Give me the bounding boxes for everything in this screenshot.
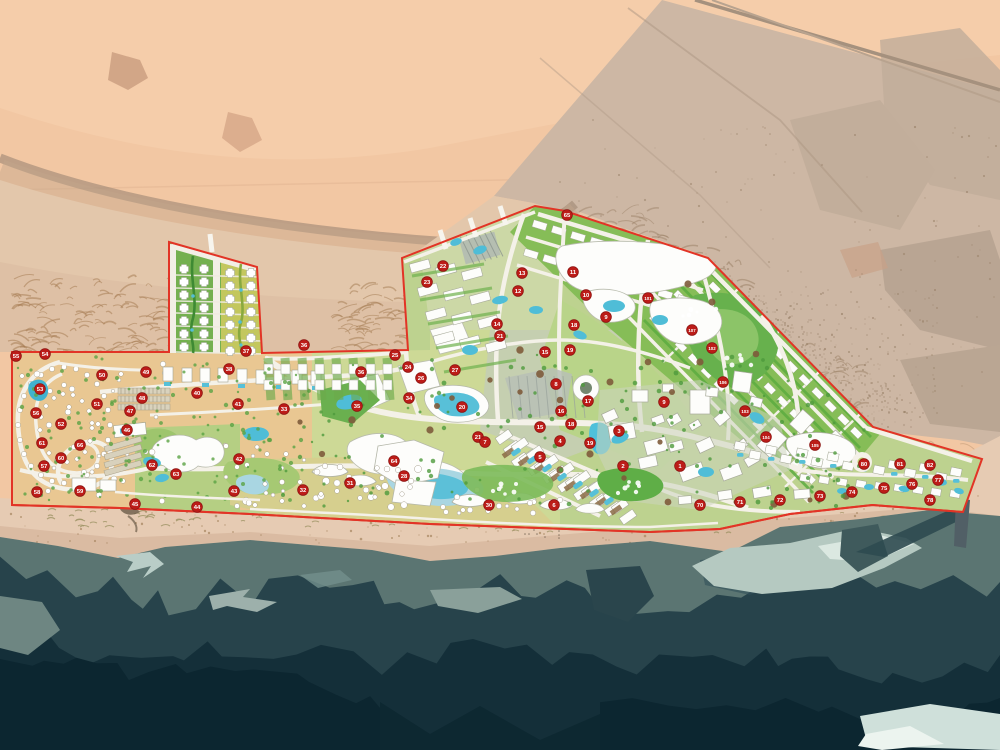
svg-text:51: 51: [94, 402, 101, 408]
svg-text:30: 30: [486, 503, 493, 509]
svg-text:19: 19: [567, 348, 574, 354]
svg-text:27: 27: [452, 368, 459, 374]
svg-text:18: 18: [571, 323, 578, 329]
svg-text:12: 12: [515, 289, 522, 295]
svg-text:62: 62: [149, 463, 156, 469]
svg-text:52: 52: [58, 422, 65, 428]
svg-text:11: 11: [570, 270, 577, 276]
svg-text:17: 17: [585, 399, 592, 405]
svg-text:71: 71: [737, 500, 744, 506]
svg-text:74: 74: [849, 490, 856, 496]
svg-text:18: 18: [568, 422, 575, 428]
svg-text:77: 77: [935, 478, 942, 484]
svg-text:60: 60: [58, 456, 65, 462]
svg-text:70: 70: [697, 503, 704, 509]
svg-text:82: 82: [927, 463, 934, 469]
svg-text:15: 15: [542, 350, 549, 356]
svg-text:32: 32: [300, 488, 307, 494]
svg-text:106: 106: [719, 380, 727, 385]
svg-text:21: 21: [497, 334, 504, 340]
svg-text:80: 80: [861, 462, 868, 468]
svg-text:102: 102: [708, 346, 716, 351]
svg-text:31: 31: [347, 481, 354, 487]
svg-text:15: 15: [537, 425, 544, 431]
svg-text:34: 34: [406, 396, 413, 402]
svg-text:16: 16: [558, 409, 565, 415]
svg-text:28: 28: [401, 474, 408, 480]
svg-text:105: 105: [811, 443, 819, 448]
svg-text:19: 19: [587, 441, 594, 447]
svg-text:46: 46: [124, 428, 131, 434]
svg-text:35: 35: [354, 404, 361, 410]
svg-text:101: 101: [644, 296, 652, 301]
svg-text:20: 20: [459, 405, 466, 411]
svg-text:61: 61: [39, 441, 46, 447]
svg-text:47: 47: [127, 409, 134, 415]
svg-text:37: 37: [243, 349, 250, 355]
svg-text:64: 64: [391, 459, 398, 465]
svg-text:36: 36: [301, 343, 308, 349]
svg-text:72: 72: [777, 498, 784, 504]
svg-text:107: 107: [688, 328, 696, 333]
svg-text:59: 59: [77, 489, 84, 495]
svg-text:36: 36: [358, 370, 365, 376]
svg-text:14: 14: [494, 322, 501, 328]
svg-text:50: 50: [99, 373, 106, 379]
svg-text:10: 10: [583, 293, 590, 299]
svg-text:104: 104: [762, 435, 770, 440]
svg-text:42: 42: [236, 457, 243, 463]
svg-text:48: 48: [139, 396, 146, 402]
svg-text:81: 81: [897, 462, 904, 468]
svg-text:78: 78: [927, 498, 934, 504]
svg-text:44: 44: [194, 505, 201, 511]
svg-text:103: 103: [741, 409, 749, 414]
svg-text:55: 55: [13, 354, 20, 360]
svg-text:73: 73: [817, 494, 824, 500]
svg-text:58: 58: [34, 490, 41, 496]
svg-text:33: 33: [281, 407, 288, 413]
svg-text:23: 23: [424, 280, 431, 286]
svg-text:56: 56: [33, 411, 40, 417]
svg-text:38: 38: [226, 367, 233, 373]
svg-text:65: 65: [564, 213, 571, 219]
svg-text:45: 45: [132, 502, 139, 508]
svg-text:57: 57: [41, 464, 48, 470]
svg-text:43: 43: [231, 489, 238, 495]
svg-text:24: 24: [405, 365, 412, 371]
svg-text:13: 13: [519, 271, 526, 277]
svg-text:26: 26: [418, 376, 425, 382]
svg-text:75: 75: [881, 486, 888, 492]
svg-text:22: 22: [440, 264, 447, 270]
svg-text:25: 25: [392, 353, 399, 359]
svg-text:40: 40: [194, 391, 201, 397]
svg-text:76: 76: [909, 482, 916, 488]
svg-text:63: 63: [173, 472, 180, 478]
svg-text:54: 54: [42, 352, 49, 358]
svg-text:41: 41: [235, 402, 242, 408]
svg-text:66: 66: [77, 443, 84, 449]
svg-text:49: 49: [143, 370, 150, 376]
svg-text:53: 53: [37, 387, 44, 393]
